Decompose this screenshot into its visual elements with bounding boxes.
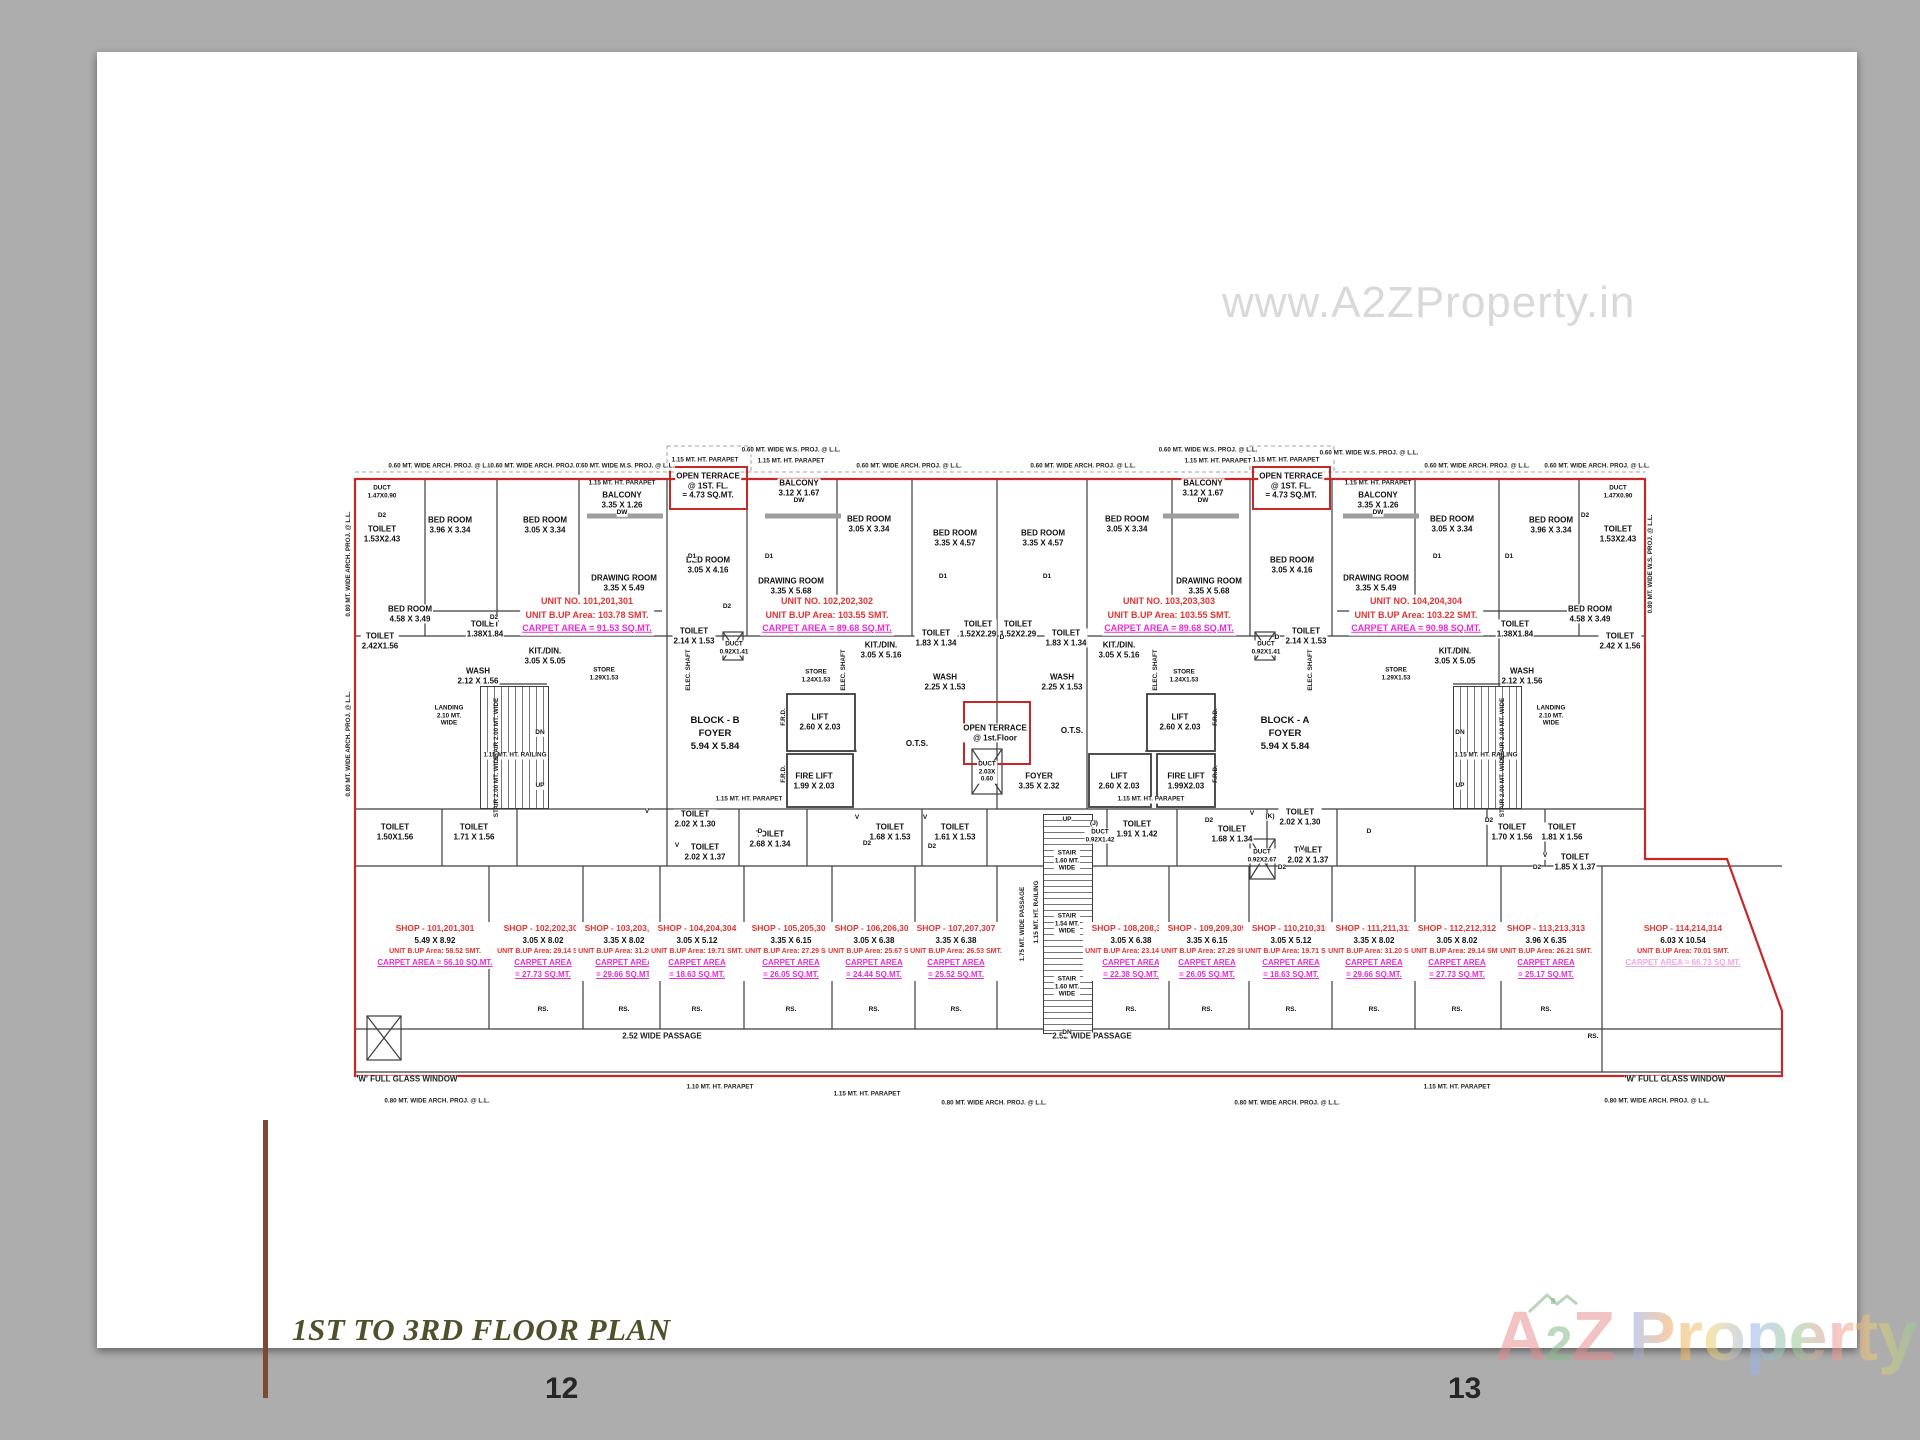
room-label: BED ROOM4.58 X 3.49 — [1567, 604, 1613, 623]
door-mark: RS. — [1126, 1007, 1137, 1014]
room-label: BED ROOM4.58 X 3.49 — [387, 604, 433, 623]
room-label: OPEN TERRACE@ 1ST. FL.= 4.73 SQ.MT. — [675, 472, 741, 501]
room-label: TOILET1.70 X 1.56 — [1491, 822, 1534, 841]
annotation-vertical: F.R.D. — [781, 708, 787, 726]
annotation-vertical: ELEC. SHAFT — [841, 649, 847, 690]
door-mark: DN — [1455, 730, 1464, 737]
room-label: TOILET2.14 X 1.53 — [1285, 626, 1328, 645]
annotation: 1.15 MT. HT. RAILING — [1455, 753, 1518, 760]
door-mark: RS. — [786, 1007, 797, 1014]
annotation-vertical: ELEC. SHAFT — [1308, 649, 1314, 690]
room-label: KIT./DIN.3.05 X 5.16 — [860, 640, 903, 659]
room-label: TOILET1.68 X 1.53 — [869, 822, 912, 841]
page-title: 1ST TO 3RD FLOOR PLAN — [292, 1312, 671, 1348]
logo-word-property: Property — [1629, 1297, 1917, 1375]
room-label: STAIR1.54 MT.WIDE — [1054, 913, 1080, 936]
room-label: BED ROOM3.96 X 3.34 — [427, 515, 473, 534]
annotation-vertical: ELEC. SHAFT — [1153, 649, 1159, 690]
annotation-vertical: STAIR 2.00 MT. WIDE — [1500, 698, 1506, 761]
annotation: 0.60 MT. WIDE ARCH. PROJ. @ L.L. — [856, 464, 961, 471]
door-mark: RS. — [1369, 1007, 1380, 1014]
door-mark: V — [1300, 846, 1304, 853]
room-label: TOILET1.38X1.84 — [1496, 619, 1534, 638]
room-label: DUCT0.92X1.41 — [1251, 640, 1282, 655]
room-label: WASH2.12 X 1.56 — [457, 666, 500, 685]
room-label: STAIR1.60 MT.WIDE — [1054, 850, 1080, 873]
room-label: DUCT1.47X0.90 — [1603, 484, 1634, 499]
door-mark: DW — [1198, 498, 1209, 505]
room-label: TOILET1.61 X 1.53 — [934, 822, 977, 841]
room-label: DUCT1.47X0.90 — [367, 484, 398, 499]
door-mark: RS. — [1452, 1007, 1463, 1014]
room-label: KIT./DIN.3.05 X 5.05 — [1434, 646, 1477, 665]
room-label: TOILET1.83 X 1.34 — [915, 628, 958, 647]
door-mark: D1 — [1505, 554, 1513, 561]
room-label: DRAWING ROOM3.35 X 5.68 — [757, 576, 825, 595]
door-mark: D1 — [939, 574, 947, 581]
door-mark: RS. — [1541, 1007, 1552, 1014]
logo-letter-a: A — [1495, 1297, 1546, 1375]
room-label: TOILET2.42X1.56 — [361, 631, 399, 650]
door-mark: V — [923, 815, 927, 822]
annotation-vertical: F.R.D. — [1213, 708, 1219, 726]
room-label: WASH2.25 X 1.53 — [924, 672, 967, 691]
room-label: WASH2.12 X 1.56 — [1501, 666, 1544, 685]
door-mark: RS. — [869, 1007, 880, 1014]
door-mark: (K) — [1265, 814, 1274, 821]
room-label: OPEN TERRACE@ 1ST. FL.= 4.73 SQ.MT. — [1258, 472, 1324, 501]
room-label: DRAWING ROOM3.35 X 5.49 — [590, 573, 658, 592]
room-label: FIRE LIFT1.99 X 2.03 — [793, 771, 836, 790]
annotation: 0.60 MT. WIDE ARCH. PROJ. @ L.L. — [1424, 464, 1529, 471]
annotation: 1.15 MT. HT. PARAPET — [1118, 797, 1185, 804]
room-label: FIRE LIFT1.99X2.03 — [1166, 771, 1205, 790]
room-label: TOILET1.85 X 1.37 — [1554, 852, 1597, 871]
door-mark: D2 — [1533, 865, 1541, 872]
room-label: TOILET2.68 X 1.34 — [749, 829, 792, 848]
annotation: 0.80 MT. WIDE ARCH. PROJ. @ L.L. — [384, 1099, 489, 1106]
room-label: TOILET1.71 X 1.56 — [453, 822, 496, 841]
door-mark: RS. — [1588, 1034, 1599, 1041]
annotation: 1.15 MT. HT. PARAPET — [716, 797, 783, 804]
annotation: 0.60 MT. WIDE W.S. PROJ. @ L.L. — [1159, 448, 1258, 455]
unit-info-label: UNIT NO. 102,202,302UNIT B.UP Area: 103.… — [760, 595, 894, 636]
room-label: BED ROOM3.05 X 3.34 — [522, 515, 568, 534]
annotation: 0.60 MT. WIDE ARCH. PROJ. @ L.L. — [388, 464, 493, 471]
room-label: STORE1.29X1.53 — [1381, 666, 1412, 681]
room-label: BED ROOM3.35 X 4.57 — [1020, 528, 1066, 547]
door-mark: DN — [1062, 1030, 1071, 1037]
door-mark: D2 — [723, 604, 731, 611]
annotation: 1.15 MT. HT. PARAPET — [1185, 459, 1252, 466]
page-number-left: 12 — [545, 1372, 578, 1406]
door-mark: V — [645, 809, 649, 816]
unit-info-label: UNIT NO. 101,201,301UNIT B.UP Area: 103.… — [520, 595, 654, 636]
door-mark: D — [1000, 635, 1005, 642]
door-mark: UP — [535, 783, 544, 790]
annotation: 0.60 MT. WIDE ARCH. PROJ. @ L.L. — [1030, 464, 1135, 471]
door-mark: D2 — [1581, 513, 1589, 520]
room-label: BED ROOM3.05 X 3.34 — [1104, 514, 1150, 533]
shop-info-label: SHOP - 114,214,3146.03 X 10.54UNIT B.UP … — [1623, 922, 1742, 969]
door-mark: D2 — [1278, 865, 1286, 872]
stair-block-b — [480, 686, 549, 809]
annotation: 0.60 MT. WIDE W.S. PROJ. @ L.L. — [742, 448, 841, 455]
door-mark: D2 — [490, 615, 498, 622]
annotation: 0.80 MT. WIDE ARCH. PROJ. @ L.L. — [1234, 1101, 1339, 1108]
annotation-vertical: 0.80 MT. WIDE W.S. PROJ. @ L.L. — [1648, 515, 1654, 614]
door-mark: D1 — [688, 554, 696, 561]
room-label: TOILET2.02 X 1.30 — [674, 809, 717, 828]
unit-info-label: UNIT NO. 104,204,304UNIT B.UP Area: 103.… — [1349, 595, 1483, 636]
door-mark: RS. — [1286, 1007, 1297, 1014]
page-number-right: 13 — [1448, 1372, 1481, 1406]
logo-letter-2: 2 — [1546, 1318, 1573, 1371]
floor-plan: DUCT1.47X0.90TOILET1.53X2.43BED ROOM3.96… — [347, 404, 1792, 1119]
shop-info-label: SHOP - 111,211,3113.35 X 8.02UNIT B.UP A… — [1326, 922, 1422, 981]
shop-info-label: SHOP - 101,201,3015.49 X 8.92UNIT B.UP A… — [375, 922, 494, 969]
room-label: DUCT0.92X2.67 — [1247, 848, 1278, 863]
door-mark: D2 — [1485, 818, 1493, 825]
room-label: DRAWING ROOM3.35 X 5.49 — [1342, 573, 1410, 592]
annotation: 1.15 MT. HT. PARAPET — [672, 458, 739, 465]
room-label: STORE1.24X1.53 — [801, 668, 832, 683]
shop-info-label: SHOP - 113,213,3133.96 X 6.35UNIT B.UP A… — [1498, 922, 1594, 981]
annotation: 1.15 MT. HT. PARAPET — [1424, 1085, 1491, 1092]
door-mark: D1 — [765, 554, 773, 561]
room-label: TOILET1.83 X 1.34 — [1045, 628, 1088, 647]
door-mark: DN — [535, 730, 544, 737]
annotation: 1.15 MT. HT. PARAPET — [1253, 458, 1320, 465]
room-label: DUCT0.92X1.42 — [1085, 828, 1116, 843]
room-label: TOILET1.38X1.84 — [466, 619, 504, 638]
annotation-vertical: 0.80 MT. WIDE ARCH. PROJ. @ L.L. — [346, 691, 352, 796]
door-mark: RS. — [692, 1007, 703, 1014]
logo-letter-z: Z — [1572, 1297, 1615, 1375]
annotation: 0.60 MT. WIDE M.S. PROJ. @ L.L. — [576, 464, 675, 471]
door-mark: V — [1250, 811, 1254, 818]
door-mark: D2 — [928, 844, 936, 851]
room-label: BLOCK - BFOYER5.94 X 5.84 — [689, 715, 740, 753]
room-label: TOILET1.53X2.43 — [1599, 524, 1637, 543]
room-label: BALCONY3.35 X 1.26 — [1357, 490, 1400, 509]
annotation-vertical: STAIR 2.00 MT. WIDE — [494, 698, 500, 761]
annotation: 'W' FULL GLASS WINDOW — [1625, 1076, 1726, 1085]
door-mark: D — [758, 829, 763, 836]
room-label: FOYER3.35 X 2.32 — [1018, 771, 1061, 790]
room-label: BED ROOM3.96 X 3.34 — [1528, 515, 1574, 534]
door-mark: RS. — [1202, 1007, 1213, 1014]
room-label: LIFT2.60 X 2.03 — [1098, 771, 1141, 790]
shop-info-label: SHOP - 105,205,3053.35 X 6.15UNIT B.UP A… — [743, 922, 839, 981]
room-label: BALCONY3.12 X 1.67 — [778, 478, 821, 497]
room-label: WASH2.25 X 1.53 — [1041, 672, 1084, 691]
room-label: LANDING2.10 MT.WIDE — [434, 705, 465, 728]
room-label: TOILET2.02 X 1.37 — [684, 842, 727, 861]
door-mark: D2 — [378, 513, 386, 520]
door-mark: D1 — [1433, 554, 1441, 561]
annotation-vertical: ELEC. SHAFT — [686, 649, 692, 690]
room-label: BALCONY3.35 X 1.26 — [601, 490, 644, 509]
door-mark: RS. — [619, 1007, 630, 1014]
room-label: O.T.S. — [905, 739, 929, 749]
shop-info-label: SHOP - 112,212,3123.05 X 8.02UNIT B.UP A… — [1409, 922, 1505, 981]
annotation: 0.60 MT. WIDE ARCH. PROJ. @ L.L. — [1544, 464, 1649, 471]
shop-info-label: SHOP - 104,204,3043.05 X 5.12UNIT B.UP A… — [649, 922, 745, 981]
room-label: BED ROOM3.05 X 4.16 — [1269, 555, 1315, 574]
room-label: DRAWING ROOM3.35 X 5.68 — [1175, 576, 1243, 595]
room-label: STAIR1.60 MT.WIDE — [1054, 976, 1080, 999]
annotation: 0.80 MT. WIDE ARCH. PROJ. @ L.L. — [941, 1101, 1046, 1108]
annotation-vertical: 1.75 MT. WIDE PASSAGE — [1020, 887, 1026, 961]
shop-info-label: SHOP - 109,209,3093.35 X 6.15UNIT B.UP A… — [1159, 922, 1255, 981]
door-mark: DW — [617, 510, 628, 517]
room-label: TOILET1.68 X 1.34 — [1211, 824, 1254, 843]
door-mark: D2 — [1205, 818, 1213, 825]
room-label: TOILET2.42 X 1.56 — [1599, 631, 1642, 650]
annotation-vertical: F.R.D. — [781, 765, 787, 783]
room-label: BED ROOM3.35 X 4.57 — [932, 528, 978, 547]
accent-bar — [263, 1120, 268, 1398]
room-label: OPEN TERRACE@ 1st.Floor — [962, 723, 1028, 742]
door-mark: V — [675, 843, 679, 850]
room-label: TOILET1.53X2.43 — [363, 524, 401, 543]
room-label: STORE1.29X1.53 — [589, 666, 620, 681]
room-label: BED ROOM3.05 X 3.34 — [846, 514, 892, 533]
document-page: www.A2ZProperty.in — [97, 52, 1857, 1348]
room-label: STORE1.24X1.53 — [1169, 668, 1200, 683]
door-mark: D1 — [1043, 574, 1051, 581]
room-label: TOILET1.91 X 1.42 — [1116, 819, 1159, 838]
annotation: 0.80 MT. WIDE ARCH. PROJ. @ L.L. — [1604, 1099, 1709, 1106]
annotation: 1.15 MT. HT. PARAPET — [758, 459, 825, 466]
annotation: 1.15 MT. HT. PARAPET — [589, 481, 656, 488]
annotation-vertical: STAIR 2.00 MT. WIDE — [494, 755, 500, 818]
annotation: 0.60 MT. WIDE W.S. PROJ. @ L.L. — [1320, 451, 1419, 458]
door-mark: D — [1275, 635, 1280, 642]
shop-info-label: SHOP - 110,210,3103.05 X 5.12UNIT B.UP A… — [1243, 922, 1339, 981]
door-mark: RS. — [951, 1007, 962, 1014]
room-label: LANDING2.10 MT.WIDE — [1536, 705, 1567, 728]
room-label: TOILET1.50X1.56 — [376, 822, 414, 841]
door-mark: DW — [794, 498, 805, 505]
room-label: KIT./DIN.3.05 X 5.16 — [1098, 640, 1141, 659]
door-mark: V — [1543, 853, 1547, 860]
room-label: BED ROOM3.05 X 3.34 — [1429, 514, 1475, 533]
brand-logo: A2ZProperty — [1495, 1296, 1917, 1376]
annotation-vertical: F.R.D. — [1213, 765, 1219, 783]
room-label: TOILET1.81 X 1.56 — [1541, 822, 1584, 841]
door-mark: D2 — [863, 841, 871, 848]
watermark: www.A2ZProperty.in — [1222, 278, 1635, 328]
annotation: 'W' FULL GLASS WINDOW — [357, 1076, 458, 1085]
room-label: LIFT2.60 X 2.03 — [799, 712, 842, 731]
annotation: 2.52 WIDE PASSAGE — [622, 1033, 701, 1042]
door-mark: V — [855, 815, 859, 822]
annotation-vertical: STAIR 2.00 MT. WIDE — [1500, 755, 1506, 818]
room-label: BLOCK - AFOYER5.94 X 5.84 — [1260, 715, 1311, 753]
unit-info-label: UNIT NO. 103,203,303UNIT B.UP Area: 103.… — [1102, 595, 1236, 636]
room-label: DUCT2.03X0.60 — [977, 761, 997, 784]
annotation: 1.10 MT. HT. PARAPET — [687, 1085, 754, 1092]
annotation: 1.15 MT. HT. PARAPET — [1345, 481, 1412, 488]
door-mark: D — [1367, 829, 1372, 836]
room-label: BALCONY3.12 X 1.67 — [1182, 478, 1225, 497]
room-label: TOILET2.02 X 1.37 — [1287, 845, 1330, 864]
room-label: TOILET2.14 X 1.53 — [673, 626, 716, 645]
room-label: TOILET1.52X2.29 — [959, 619, 997, 638]
door-mark: RS. — [538, 1007, 549, 1014]
door-mark: UP — [1062, 817, 1071, 824]
door-mark: DW — [1373, 510, 1384, 517]
room-label: LIFT2.60 X 2.03 — [1159, 712, 1202, 731]
room-label: DUCT0.92X1.41 — [719, 640, 750, 655]
room-label: TOILET2.02 X 1.30 — [1279, 807, 1322, 826]
room-label: O.T.S. — [1060, 726, 1084, 736]
annotation-vertical: 1.15 MT. HT. RAILING — [1034, 881, 1040, 944]
annotation-vertical: 0.80 MT. WIDE ARCH. PROJ. @ L.L. — [346, 511, 352, 616]
door-mark: UP — [1455, 783, 1464, 790]
room-label: KIT./DIN.3.05 X 5.05 — [524, 646, 567, 665]
door-mark: (J) — [1090, 821, 1098, 828]
shop-info-label: SHOP - 107,207,3073.35 X 6.38UNIT B.UP A… — [908, 922, 1004, 981]
stair-block-a — [1453, 686, 1522, 809]
annotation: 1.15 MT. HT. PARAPET — [834, 1092, 901, 1099]
